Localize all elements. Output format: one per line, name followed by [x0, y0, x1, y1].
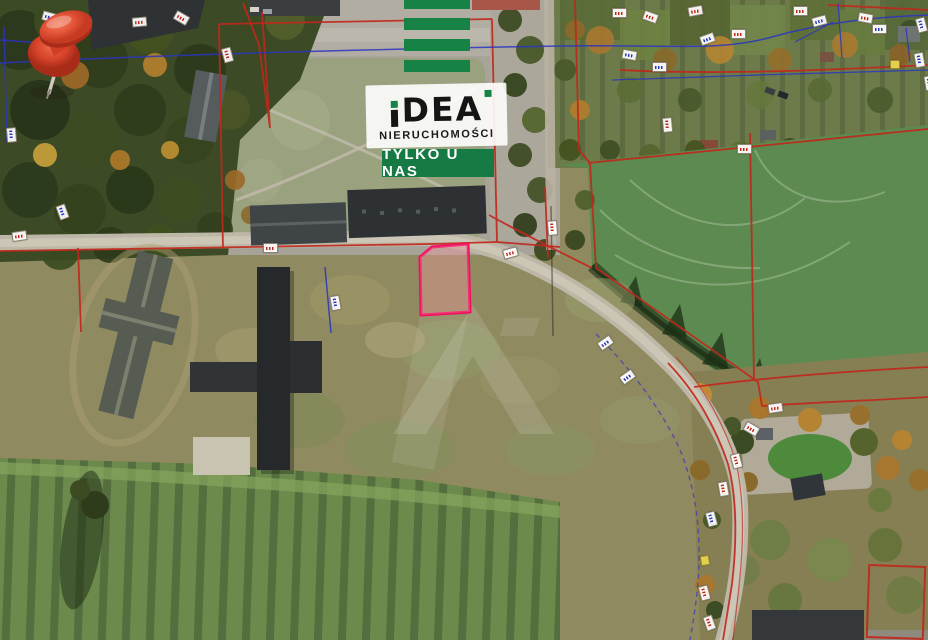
plot-highlight	[420, 244, 470, 315]
plot-haze	[420, 244, 470, 315]
brand-letter-i	[389, 101, 399, 127]
brand-text: DEA	[401, 92, 483, 127]
map-pin-icon	[0, 0, 130, 120]
green-dot-accent	[390, 101, 397, 108]
logo-stripe	[404, 0, 470, 9]
logo-stripe	[404, 60, 470, 72]
agency-logo: DEA NIERUCHOMOŚCI	[365, 83, 507, 149]
brand-subtitle: NIERUCHOMOŚCI	[379, 128, 495, 142]
logo-stripe	[404, 18, 470, 30]
brand-wordmark: DEA	[389, 89, 483, 127]
logo-stripes	[404, 0, 470, 81]
green-square-accent	[485, 90, 492, 97]
exclusive-badge: TYLKO U NAS	[382, 149, 494, 177]
listing-map-image: DEA NIERUCHOMOŚCI TYLKO U NAS	[0, 0, 928, 640]
logo-stripe	[404, 39, 470, 51]
